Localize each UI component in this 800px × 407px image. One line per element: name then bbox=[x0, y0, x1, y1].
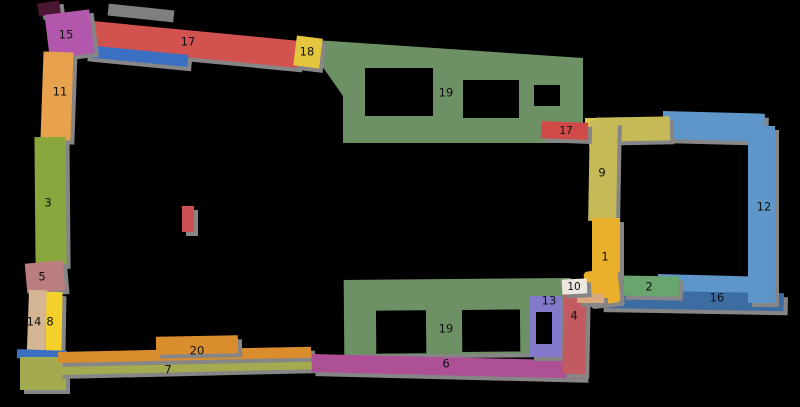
segment-4 bbox=[562, 292, 586, 374]
segment-18 bbox=[293, 36, 322, 69]
segment-11 bbox=[40, 52, 73, 141]
segment-12 bbox=[748, 126, 775, 303]
window-opening bbox=[534, 85, 560, 106]
segment-20-bastion bbox=[156, 335, 238, 354]
window-opening bbox=[376, 310, 426, 353]
window-opening bbox=[462, 309, 520, 352]
segment-3 bbox=[34, 137, 66, 265]
segment-8 bbox=[45, 292, 62, 353]
window-opening bbox=[536, 312, 552, 344]
segment-2 bbox=[622, 276, 679, 297]
segment-6 bbox=[312, 354, 585, 379]
window-opening bbox=[365, 68, 433, 116]
segment-14 bbox=[27, 290, 47, 351]
segment-9 bbox=[588, 121, 618, 221]
segment-10 bbox=[562, 278, 588, 294]
wall-sections-map: 15 17 18 11 3 5 14 8 7 20 6 19 13 4 10 1… bbox=[0, 0, 800, 407]
segment-13 bbox=[530, 296, 561, 357]
shadow-strip bbox=[108, 4, 175, 23]
center-marker bbox=[182, 206, 194, 232]
segment-17-east bbox=[541, 121, 589, 140]
window-opening bbox=[463, 80, 519, 118]
segment-5 bbox=[25, 260, 65, 293]
segment-10-link bbox=[577, 294, 604, 303]
segment-17-north bbox=[79, 20, 301, 68]
